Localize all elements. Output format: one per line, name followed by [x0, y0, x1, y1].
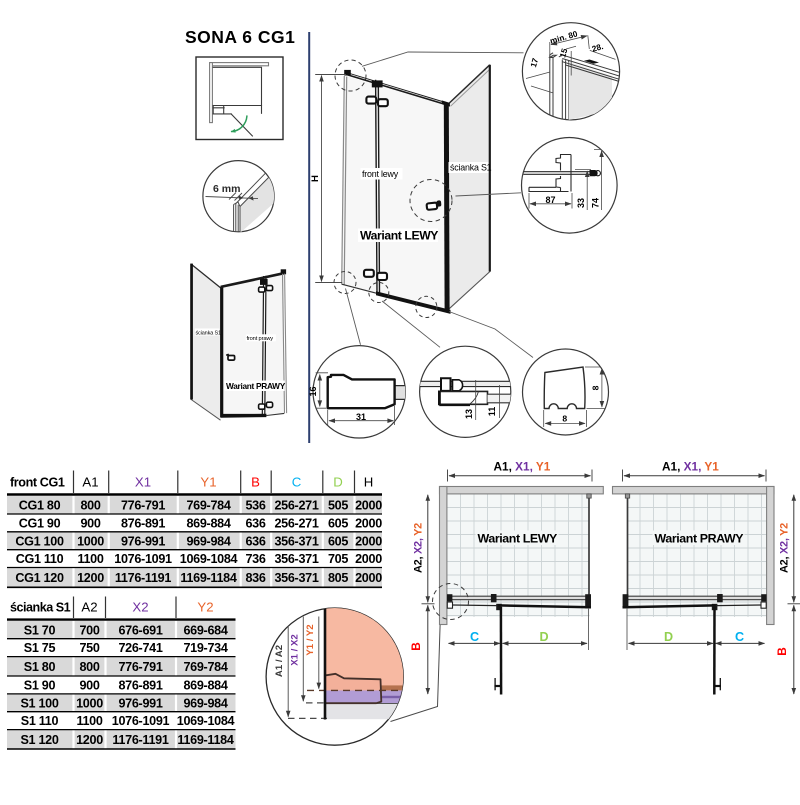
svg-text:1200: 1200 — [76, 733, 103, 747]
svg-text:1076-1091: 1076-1091 — [112, 714, 170, 728]
svg-text:769-784: 769-784 — [183, 660, 227, 674]
svg-text:S1 90: S1 90 — [24, 678, 56, 692]
svg-text:1176-1191: 1176-1191 — [115, 571, 171, 585]
svg-text:Wariant PRAWY: Wariant PRAWY — [655, 532, 745, 546]
svg-text:769-784: 769-784 — [186, 499, 230, 513]
svg-text:Wariant LEWY: Wariant LEWY — [360, 229, 438, 243]
svg-text:D: D — [539, 630, 548, 644]
svg-text:700: 700 — [79, 623, 99, 637]
svg-text:CG1 80: CG1 80 — [19, 499, 61, 513]
svg-text:1100: 1100 — [77, 552, 103, 566]
svg-text:A1, X1, Y1: A1, X1, Y1 — [494, 460, 551, 474]
svg-text:S1 75: S1 75 — [24, 641, 56, 655]
svg-text:A2, X2, Y2: A2, X2, Y2 — [778, 523, 790, 573]
svg-text:705: 705 — [328, 552, 348, 566]
svg-text:2000: 2000 — [355, 552, 382, 566]
svg-text:A2: A2 — [81, 600, 97, 615]
svg-text:B: B — [251, 475, 260, 490]
svg-text:669-684: 669-684 — [183, 623, 227, 637]
svg-text:976-991: 976-991 — [121, 534, 165, 548]
svg-text:A1: A1 — [82, 475, 98, 490]
svg-text:ścianka S1: ścianka S1 — [10, 601, 71, 615]
svg-text:8: 8 — [591, 385, 601, 390]
svg-text:726-741: 726-741 — [118, 641, 162, 655]
svg-text:876-891: 876-891 — [121, 516, 165, 530]
svg-text:front CG1: front CG1 — [10, 476, 65, 490]
svg-text:750: 750 — [79, 641, 99, 655]
svg-text:2000: 2000 — [355, 516, 382, 530]
svg-text:800: 800 — [79, 660, 99, 674]
svg-text:Wariant PRAWY: Wariant PRAWY — [226, 381, 286, 391]
svg-text:C: C — [735, 630, 744, 644]
svg-text:676-691: 676-691 — [118, 623, 162, 637]
svg-text:CG1 90: CG1 90 — [19, 516, 61, 530]
svg-text:B: B — [409, 642, 423, 651]
svg-text:Y1 / Y2: Y1 / Y2 — [305, 624, 316, 655]
svg-text:1169-1184: 1169-1184 — [177, 733, 233, 747]
svg-text:A1, X1, Y1: A1, X1, Y1 — [662, 460, 719, 474]
svg-text:1100: 1100 — [76, 714, 102, 728]
svg-text:719-734: 719-734 — [183, 641, 227, 655]
svg-text:2000: 2000 — [355, 534, 382, 548]
svg-text:1069-1084: 1069-1084 — [177, 714, 235, 728]
svg-text:356-371: 356-371 — [274, 552, 318, 566]
svg-text:D: D — [664, 630, 673, 644]
svg-text:A2, X2, Y2: A2, X2, Y2 — [412, 523, 424, 573]
svg-text:900: 900 — [79, 678, 99, 692]
svg-text:SONA 6 CG1: SONA 6 CG1 — [185, 27, 295, 47]
svg-text:836: 836 — [245, 571, 265, 585]
svg-text:S1 110: S1 110 — [21, 714, 59, 728]
svg-text:A1 / A2: A1 / A2 — [274, 645, 285, 677]
svg-text:876-891: 876-891 — [118, 678, 162, 692]
svg-text:Wariant LEWY: Wariant LEWY — [478, 532, 559, 546]
svg-text:33: 33 — [576, 198, 586, 208]
svg-text:636: 636 — [245, 516, 265, 530]
svg-text:1069-1084: 1069-1084 — [180, 552, 238, 566]
svg-text:256-271: 256-271 — [274, 516, 318, 530]
svg-text:8: 8 — [562, 414, 567, 424]
svg-text:C: C — [292, 475, 302, 490]
svg-text:1000: 1000 — [77, 534, 104, 548]
svg-text:D: D — [333, 475, 343, 490]
svg-text:776-791: 776-791 — [121, 499, 165, 513]
svg-text:2000: 2000 — [355, 499, 382, 513]
svg-text:C: C — [470, 630, 479, 644]
svg-text:1200: 1200 — [77, 571, 104, 585]
svg-text:869-884: 869-884 — [183, 678, 227, 692]
svg-text:969-984: 969-984 — [186, 534, 230, 548]
svg-text:ścianka S1: ścianka S1 — [450, 163, 492, 173]
svg-text:CG1 120: CG1 120 — [15, 571, 64, 585]
svg-text:X1 / X2: X1 / X2 — [289, 634, 300, 665]
svg-text:605: 605 — [328, 516, 348, 530]
svg-text:H: H — [310, 175, 321, 182]
svg-text:969-984: 969-984 — [183, 696, 227, 710]
svg-text:800: 800 — [80, 499, 100, 513]
svg-text:1000: 1000 — [76, 696, 103, 710]
svg-text:S1 100: S1 100 — [20, 696, 58, 710]
svg-text:256-271: 256-271 — [274, 499, 318, 513]
svg-text:1076-1091: 1076-1091 — [114, 552, 172, 566]
svg-text:ścianka S1: ścianka S1 — [196, 330, 221, 336]
svg-text:605: 605 — [328, 534, 348, 548]
svg-text:X1: X1 — [135, 475, 151, 490]
svg-text:16: 16 — [308, 386, 318, 396]
svg-text:S1 80: S1 80 — [24, 660, 56, 674]
svg-text:front lewy: front lewy — [362, 169, 399, 179]
svg-text:front prawy: front prawy — [247, 336, 274, 342]
svg-text:74: 74 — [591, 198, 601, 208]
svg-text:13: 13 — [464, 409, 474, 419]
svg-text:976-991: 976-991 — [118, 696, 162, 710]
svg-text:776-791: 776-791 — [118, 660, 162, 674]
svg-text:636: 636 — [245, 534, 265, 548]
svg-text:31: 31 — [356, 412, 366, 422]
svg-text:11: 11 — [487, 407, 497, 417]
svg-text:Y2: Y2 — [197, 600, 213, 615]
svg-text:H: H — [364, 475, 374, 490]
svg-text:CG1 110: CG1 110 — [16, 552, 64, 566]
svg-text:S1 70: S1 70 — [24, 623, 56, 637]
svg-text:87: 87 — [545, 195, 555, 205]
svg-text:536: 536 — [245, 499, 265, 513]
svg-text:Y1: Y1 — [200, 475, 216, 490]
svg-text:X2: X2 — [132, 600, 148, 615]
svg-text:S1 120: S1 120 — [20, 733, 58, 747]
svg-text:2000: 2000 — [355, 571, 382, 585]
svg-text:356-371: 356-371 — [274, 571, 318, 585]
svg-text:736: 736 — [245, 552, 265, 566]
svg-text:900: 900 — [80, 516, 100, 530]
svg-text:B: B — [775, 647, 789, 656]
svg-text:869-884: 869-884 — [186, 516, 230, 530]
svg-text:1176-1191: 1176-1191 — [112, 733, 168, 747]
svg-text:CG1 100: CG1 100 — [15, 534, 64, 548]
svg-text:1169-1184: 1169-1184 — [180, 571, 236, 585]
svg-text:356-371: 356-371 — [274, 534, 318, 548]
svg-text:505: 505 — [328, 499, 348, 513]
svg-text:6 mm: 6 mm — [213, 183, 240, 195]
svg-text:805: 805 — [328, 571, 348, 585]
